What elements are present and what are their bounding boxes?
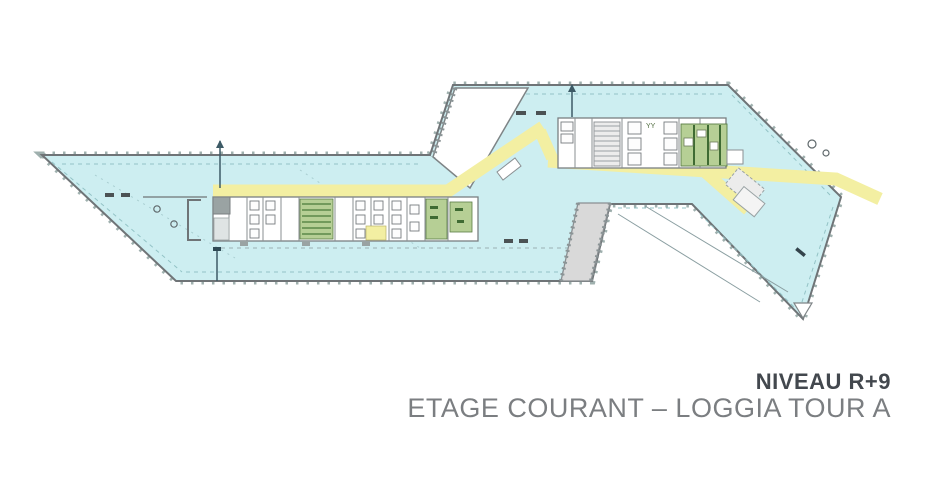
stair-room [594,122,620,166]
service-room-gray [213,197,230,214]
east-core: YY [558,118,743,168]
technical-green-east [681,124,727,166]
page: YY [0,0,929,483]
caption-subtitle: ETAGE COURANT – LOGGIA TOUR A [407,394,891,422]
drawing-caption: NIVEAU R+9 ETAGE COURANT – LOGGIA TOUR A [407,371,891,422]
caption-level: NIVEAU R+9 [407,371,891,394]
elevator-lobby-mark: YY [646,123,656,130]
